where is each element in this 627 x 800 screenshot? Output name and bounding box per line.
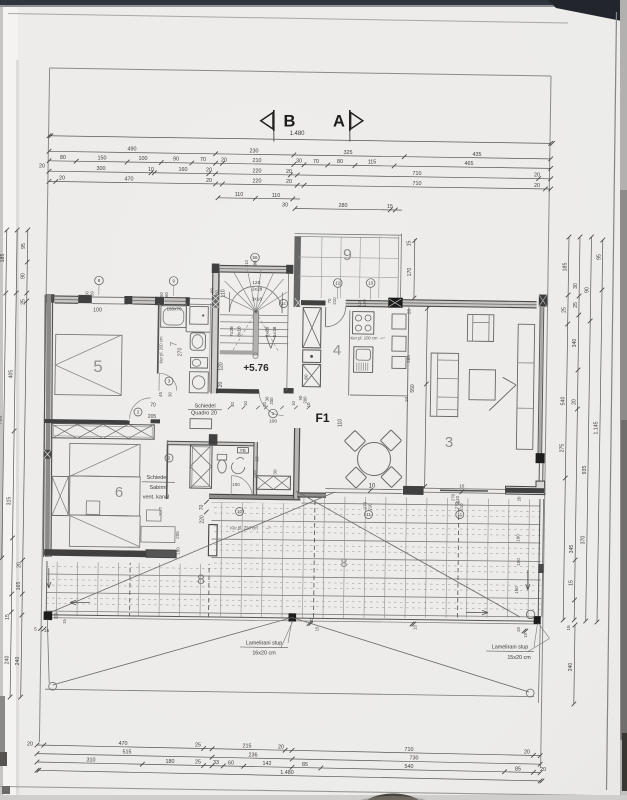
svg-text:160: 160	[514, 586, 519, 594]
svg-text:30: 30	[168, 392, 173, 397]
svg-text:20: 20	[206, 178, 212, 184]
svg-text:470: 470	[119, 741, 128, 747]
svg-text:15: 15	[569, 580, 575, 586]
svg-text:20: 20	[221, 158, 227, 164]
svg-text:45: 45	[158, 392, 163, 397]
svg-text:vent. kanal: vent. kanal	[143, 495, 170, 501]
svg-text:25: 25	[573, 302, 579, 308]
svg-text:90: 90	[585, 287, 591, 293]
svg-text:220: 220	[253, 179, 262, 185]
svg-text:210: 210	[253, 158, 262, 164]
svg-text:20: 20	[516, 627, 521, 632]
svg-text:Lamelirani stup: Lamelirani stup	[246, 641, 283, 647]
svg-text:25: 25	[195, 760, 201, 766]
svg-text:200: 200	[303, 396, 308, 404]
svg-text:170: 170	[407, 268, 413, 277]
svg-text:470: 470	[125, 177, 134, 183]
svg-text:60: 60	[228, 760, 234, 766]
svg-text:33: 33	[213, 760, 219, 766]
svg-text:70: 70	[313, 159, 319, 165]
svg-text:25: 25	[562, 307, 568, 313]
svg-text:95: 95	[596, 254, 602, 260]
svg-text:120: 120	[219, 362, 225, 371]
svg-text:30: 30	[296, 159, 302, 165]
svg-text:70: 70	[150, 403, 156, 409]
svg-text:210: 210	[459, 503, 464, 511]
svg-text:25: 25	[407, 309, 412, 315]
svg-text:465: 465	[465, 161, 474, 167]
svg-text:325: 325	[344, 150, 353, 156]
svg-text:40: 40	[230, 402, 235, 407]
svg-text:Schiedel: Schiedel	[146, 475, 167, 481]
svg-text:FB: FB	[240, 448, 246, 453]
svg-text:1075: 1075	[158, 506, 163, 516]
svg-text:230: 230	[250, 148, 259, 154]
svg-text:165: 165	[16, 582, 22, 591]
svg-text:275: 275	[560, 444, 566, 453]
svg-text:20: 20	[534, 173, 540, 179]
svg-text:236: 236	[249, 752, 258, 758]
svg-text:13: 13	[368, 281, 374, 286]
svg-text:10: 10	[404, 397, 409, 403]
svg-text:11: 11	[366, 512, 371, 517]
svg-text:200: 200	[269, 397, 274, 405]
svg-text:490: 490	[128, 147, 137, 153]
svg-text:7: 7	[169, 341, 179, 346]
svg-text:10: 10	[369, 484, 376, 490]
svg-text:Ker pl. 100 cm: Ker pl. 100 cm	[351, 336, 379, 341]
svg-text:Ker.pl. 220 cm: Ker.pl. 220 cm	[230, 526, 258, 531]
svg-text:2: 2	[168, 456, 171, 461]
svg-text:120: 120	[252, 280, 260, 286]
svg-text:30: 30	[282, 203, 288, 209]
svg-text:60: 60	[255, 456, 260, 462]
svg-text:340: 340	[572, 339, 578, 348]
svg-text:8: 8	[98, 278, 101, 283]
svg-text:60: 60	[164, 292, 169, 297]
svg-text:210: 210	[367, 503, 372, 511]
svg-text:20: 20	[286, 179, 292, 185]
svg-text:280: 280	[339, 203, 348, 209]
svg-text:10: 10	[459, 483, 465, 488]
svg-text:15: 15	[387, 204, 393, 210]
svg-text:15: 15	[5, 614, 11, 620]
svg-text:20: 20	[571, 399, 577, 405]
svg-text:142: 142	[263, 761, 272, 767]
svg-text:20: 20	[540, 767, 546, 773]
svg-text:180: 180	[166, 759, 175, 765]
svg-text:315: 315	[7, 497, 13, 506]
svg-text:60: 60	[215, 290, 220, 295]
svg-text:730: 730	[410, 756, 419, 762]
svg-text:780: 780	[0, 416, 4, 425]
svg-text:100: 100	[269, 419, 277, 425]
svg-text:2: 2	[137, 410, 140, 415]
svg-text:20: 20	[517, 496, 522, 501]
svg-text:15: 15	[315, 626, 320, 631]
svg-text:115: 115	[368, 160, 377, 166]
svg-text:540: 540	[405, 764, 414, 770]
svg-text:220: 220	[200, 515, 206, 524]
svg-text:Sabirni: Sabirni	[149, 485, 166, 491]
svg-text:205: 205	[175, 531, 180, 539]
svg-text:15x20 cm: 15x20 cm	[507, 655, 531, 661]
svg-text:Schiedel: Schiedel	[194, 404, 215, 410]
svg-text:20: 20	[90, 291, 95, 296]
svg-text:205: 205	[148, 414, 157, 420]
svg-text:550: 550	[410, 384, 416, 393]
svg-text:+5.76: +5.76	[243, 363, 269, 374]
svg-text:165: 165	[0, 580, 1, 589]
svg-text:15: 15	[407, 241, 413, 247]
svg-text:15: 15	[62, 619, 67, 624]
svg-text:220: 220	[253, 168, 262, 174]
svg-text:30: 30	[573, 283, 579, 289]
svg-text:215: 215	[243, 744, 252, 750]
svg-text:12: 12	[335, 281, 341, 286]
svg-text:20: 20	[39, 164, 45, 170]
svg-text:150: 150	[98, 156, 107, 162]
svg-text:1c: 1c	[281, 301, 287, 306]
svg-text:1: 1	[272, 411, 275, 416]
svg-text:240: 240	[4, 656, 10, 665]
svg-text:540: 540	[560, 397, 566, 406]
svg-text:20: 20	[16, 562, 22, 568]
svg-text:185: 185	[562, 263, 568, 272]
svg-text:2x28: 2x28	[252, 287, 263, 293]
svg-text:345: 345	[569, 545, 575, 554]
svg-text:210: 210	[244, 259, 249, 267]
svg-text:20: 20	[286, 169, 292, 175]
svg-text:90: 90	[173, 157, 179, 163]
svg-text:935: 935	[582, 466, 588, 475]
svg-text:185: 185	[0, 254, 6, 263]
svg-text:20: 20	[524, 750, 530, 756]
svg-text:4x28: 4x28	[264, 326, 270, 337]
svg-text:20: 20	[309, 618, 314, 623]
svg-text:150: 150	[516, 558, 521, 566]
svg-text:210: 210	[332, 297, 337, 305]
svg-text:A: A	[333, 113, 345, 131]
svg-text:9: 9	[343, 247, 352, 264]
svg-text:4: 4	[333, 342, 341, 359]
svg-text:100: 100	[93, 308, 102, 314]
svg-text:90: 90	[21, 273, 27, 279]
svg-text:15: 15	[413, 625, 418, 631]
svg-text:240: 240	[568, 663, 574, 672]
svg-text:120: 120	[362, 299, 367, 307]
svg-text:8: 8	[341, 556, 348, 570]
svg-text:20: 20	[278, 744, 284, 750]
svg-text:300: 300	[97, 166, 106, 172]
svg-text:1.480: 1.480	[289, 131, 305, 137]
svg-text:3x18: 3x18	[252, 297, 263, 303]
svg-text:265: 265	[406, 355, 411, 363]
svg-text:20: 20	[206, 168, 212, 174]
svg-text:80: 80	[60, 155, 66, 161]
svg-text:F1: F1	[315, 411, 329, 425]
svg-text:70: 70	[199, 505, 205, 511]
svg-text:56: 56	[252, 255, 258, 260]
svg-text:85: 85	[302, 762, 308, 768]
svg-text:3: 3	[445, 434, 453, 451]
svg-text:30: 30	[273, 469, 278, 475]
svg-text:11: 11	[457, 512, 462, 517]
svg-text:110: 110	[272, 193, 281, 199]
svg-text:240: 240	[15, 657, 21, 666]
svg-text:710: 710	[405, 747, 414, 753]
svg-text:85: 85	[515, 766, 521, 772]
svg-text:60: 60	[304, 374, 309, 380]
svg-text:10: 10	[243, 401, 248, 406]
svg-text:310: 310	[87, 757, 96, 763]
svg-text:10: 10	[237, 509, 243, 514]
svg-text:1.480: 1.480	[280, 770, 294, 776]
svg-text:20: 20	[59, 176, 65, 182]
svg-text:B: B	[284, 113, 296, 131]
svg-text:25: 25	[195, 743, 201, 749]
svg-text:710: 710	[413, 171, 422, 177]
svg-text:Ker pl. 200 cm: Ker pl. 200 cm	[159, 336, 164, 364]
svg-text:110: 110	[338, 419, 344, 427]
svg-text:8x18: 8x18	[237, 326, 243, 337]
svg-text:20: 20	[218, 382, 224, 388]
svg-text:270: 270	[178, 348, 184, 357]
svg-text:515: 515	[123, 750, 132, 756]
svg-text:20: 20	[544, 300, 549, 305]
svg-text:435: 435	[473, 152, 482, 158]
svg-text:5x18: 5x18	[272, 326, 278, 337]
svg-text:70: 70	[200, 157, 206, 163]
svg-text:8: 8	[197, 571, 205, 587]
svg-text:160x70: 160x70	[166, 307, 182, 312]
svg-text:80: 80	[337, 159, 343, 165]
svg-text:16x20 cm: 16x20 cm	[252, 651, 276, 657]
svg-text:3: 3	[168, 379, 171, 384]
svg-text:110: 110	[235, 192, 244, 198]
svg-text:405: 405	[9, 370, 15, 379]
svg-text:Lamelirani stup: Lamelirani stup	[492, 645, 529, 651]
svg-text:1.145: 1.145	[594, 421, 600, 434]
svg-text:20: 20	[534, 183, 540, 189]
svg-text:180: 180	[516, 534, 521, 542]
svg-text:180: 180	[176, 547, 181, 555]
svg-text:180: 180	[232, 482, 240, 487]
svg-text:9: 9	[172, 279, 175, 284]
svg-text:370: 370	[581, 536, 587, 545]
svg-text:20: 20	[27, 742, 33, 748]
svg-text:7x28: 7x28	[229, 326, 235, 337]
svg-text:5: 5	[93, 357, 102, 376]
svg-text:15: 15	[566, 625, 572, 631]
svg-text:6: 6	[115, 484, 123, 501]
svg-text:80: 80	[253, 260, 258, 265]
svg-text:100: 100	[139, 156, 148, 162]
svg-text:160: 160	[179, 167, 188, 173]
svg-text:710: 710	[413, 181, 422, 187]
svg-text:10: 10	[291, 401, 296, 406]
svg-text:Quadro 20: Quadro 20	[191, 411, 217, 417]
svg-text:10: 10	[148, 167, 154, 173]
svg-text:110: 110	[220, 289, 226, 297]
svg-text:5: 5	[34, 627, 37, 633]
svg-text:95: 95	[21, 243, 27, 249]
